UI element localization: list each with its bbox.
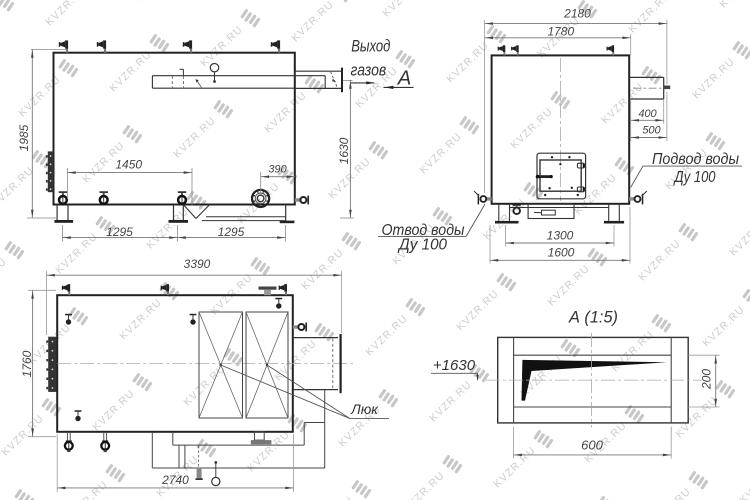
svg-text:+1630: +1630 — [433, 357, 476, 374]
svg-text:1295: 1295 — [218, 225, 245, 239]
svg-text:А: А — [397, 68, 411, 90]
svg-text:500: 500 — [642, 125, 661, 137]
svg-text:2740: 2740 — [161, 473, 189, 487]
svg-text:1450: 1450 — [115, 157, 142, 171]
svg-text:1600: 1600 — [548, 246, 575, 260]
svg-text:1630: 1630 — [337, 137, 351, 164]
svg-text:1300: 1300 — [547, 228, 574, 242]
svg-text:Люк: Люк — [350, 401, 379, 417]
svg-text:400: 400 — [638, 108, 657, 120]
svg-text:3390: 3390 — [184, 257, 211, 271]
svg-text:1295: 1295 — [106, 225, 133, 239]
svg-text:Ду 100: Ду 100 — [397, 237, 447, 254]
svg-text:Подвод воды: Подвод воды — [652, 151, 739, 168]
svg-text:200: 200 — [700, 369, 714, 390]
svg-text:газов: газов — [351, 60, 387, 79]
svg-text:2180: 2180 — [563, 7, 591, 21]
svg-text:1985: 1985 — [17, 124, 31, 151]
svg-text:1760: 1760 — [20, 350, 34, 377]
svg-text:А (1:5): А (1:5) — [568, 309, 618, 327]
svg-text:Выход: Выход — [351, 36, 390, 55]
svg-text:Ду 100: Ду 100 — [673, 169, 716, 186]
svg-text:1780: 1780 — [547, 24, 574, 38]
svg-text:390: 390 — [268, 163, 287, 175]
svg-text:600: 600 — [581, 438, 603, 453]
